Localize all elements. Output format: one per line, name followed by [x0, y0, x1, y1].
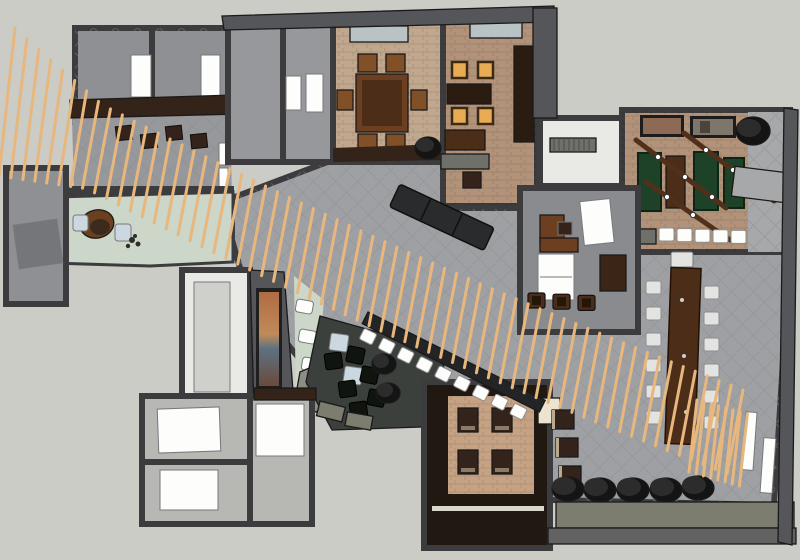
armchair-cushion [461, 468, 475, 472]
picture-art [693, 119, 733, 135]
picture-art [643, 118, 681, 134]
game-stool [713, 230, 728, 243]
reception-chair [73, 215, 88, 231]
white-table [580, 199, 614, 246]
office-desk-return [540, 238, 578, 252]
picture-art-detail [700, 121, 710, 133]
white-room-mid [182, 270, 250, 406]
skylight-window [350, 26, 408, 42]
communal-chair [646, 307, 661, 320]
dining-room-b [441, 16, 537, 206]
game-stool [659, 228, 674, 241]
bottom-wall [548, 528, 796, 544]
top-right-wall-column [533, 8, 557, 118]
game-stool [677, 229, 692, 242]
black-pouf-top [650, 478, 674, 496]
office-stool-top [582, 298, 591, 307]
door-pad [306, 74, 323, 112]
corner-chair [600, 255, 626, 291]
black-pouf-top [584, 478, 608, 496]
light-strip [432, 506, 544, 511]
white-rooms-bottom [142, 388, 316, 524]
wall-chair-edge [556, 438, 559, 457]
door-pad [131, 55, 151, 97]
lounge-pouf [324, 352, 343, 370]
communal-chair [646, 281, 661, 294]
desk-chair [558, 222, 572, 235]
black-cylinder-top [416, 138, 434, 152]
black-pouf-top [682, 476, 706, 494]
dining-b-sideboard [514, 46, 534, 142]
dining-chair [337, 90, 353, 110]
lit-chair [478, 108, 493, 124]
kitchen-block [228, 22, 333, 162]
dining-chair [358, 54, 377, 72]
black-cylinder-top [373, 354, 389, 368]
workstation-chair [165, 125, 182, 141]
lounge-chair [463, 172, 481, 188]
dining-a-table-top [362, 80, 402, 126]
armchair-cushion [495, 426, 509, 430]
white-pad [157, 407, 220, 453]
lounge-pouf [346, 346, 366, 365]
office-stool-top [532, 296, 541, 305]
floorplan-svg [0, 0, 800, 560]
door-pad [201, 55, 220, 97]
wall-chair [556, 438, 578, 457]
head-chair [671, 252, 693, 267]
office-stool-top [557, 297, 566, 306]
communal-chair [704, 312, 719, 325]
door-leaf [13, 219, 63, 269]
gray-bench [441, 154, 489, 169]
door-leaf [194, 282, 230, 392]
side-table [329, 333, 349, 352]
dining-chair [386, 54, 405, 72]
game-room [622, 110, 797, 252]
communal-chair [646, 333, 661, 346]
communal-chair [704, 286, 719, 299]
coffee-table [445, 130, 485, 150]
white-corridor [540, 118, 622, 186]
game-stool-row [659, 228, 746, 243]
reception-chair [115, 224, 131, 241]
black-cylinder-top [377, 383, 393, 397]
left-room [6, 168, 66, 304]
black-pouf-top [552, 477, 576, 495]
white-pad [256, 404, 304, 456]
dining-b-table [447, 84, 491, 104]
office-stools [528, 293, 595, 310]
armchair-cushion [461, 426, 475, 430]
pouf-row [552, 476, 714, 502]
reception-desk-top [90, 219, 110, 235]
communal-chair [704, 338, 719, 351]
game-stool [731, 230, 746, 243]
workstation-chair [190, 133, 207, 149]
game-stool [695, 229, 710, 242]
wood-band [254, 388, 316, 400]
black-pouf-top [617, 478, 641, 496]
armchair-cushion [495, 468, 509, 472]
wall-chair-edge [552, 410, 555, 429]
lit-chair [452, 108, 467, 124]
lit-chair [452, 62, 467, 78]
dining-chair [411, 90, 427, 110]
black-cylinder-top [737, 119, 761, 137]
white-bench [295, 299, 314, 315]
floorplan-render [0, 0, 800, 560]
lit-chair [478, 62, 493, 78]
white-pad [160, 470, 218, 510]
long-olive-bench [556, 502, 794, 528]
door-pad [286, 76, 301, 110]
artwork [259, 292, 279, 386]
lounge-pouf [338, 380, 357, 398]
